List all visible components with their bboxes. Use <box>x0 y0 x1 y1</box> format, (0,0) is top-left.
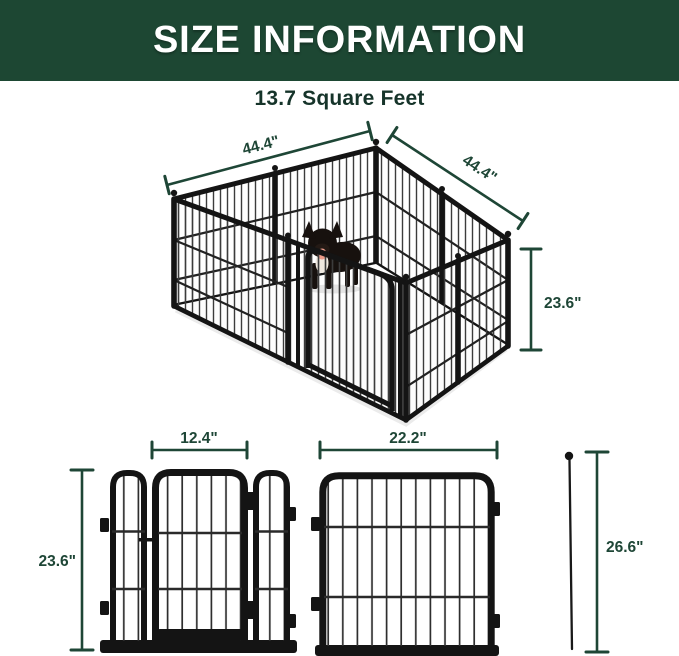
gate-group-base-bar <box>100 640 297 653</box>
single-panel-diagram: 22.2" <box>311 430 500 656</box>
connector-tab <box>491 614 500 628</box>
dimension-stake-length: 26.6" <box>586 452 644 652</box>
dim-label-gate-height: 23.6" <box>38 553 76 570</box>
dim-label-gate-width: 12.4" <box>180 430 218 447</box>
dim-label-pen-height: 23.6" <box>544 295 582 312</box>
dim-label-panel-width: 22.2" <box>389 430 427 447</box>
gate-door-bottom-rail <box>158 629 242 641</box>
gate-door-panel <box>156 473 245 642</box>
dim-label-back-right-width: 44.4" <box>459 152 500 187</box>
gate-side-panel-right <box>256 473 287 641</box>
dimension-gate-height: 23.6" <box>38 470 93 650</box>
gate-side-panel-left <box>113 473 144 641</box>
stake-head <box>565 452 573 460</box>
dimension-gate-width: 12.4" <box>152 430 247 458</box>
page-title: SIZE INFORMATION <box>153 19 526 62</box>
pen-3d-illustration <box>171 139 511 424</box>
gate-latch <box>139 538 153 542</box>
gate-hinge-bottom <box>244 601 258 619</box>
dim-label-stake-length: 26.6" <box>606 539 644 556</box>
area-label: 13.7 Square Feet <box>0 87 679 111</box>
panel-frame <box>323 476 491 646</box>
connector-tab <box>287 614 296 628</box>
connector-tab <box>311 597 320 611</box>
gate-hinge-top <box>244 492 258 510</box>
ground-stake-diagram: 26.6" <box>565 452 644 652</box>
stake-shaft <box>570 460 573 649</box>
dimension-panel-width: 22.2" <box>320 430 497 458</box>
connector-tab <box>287 507 296 521</box>
dim-label-back-left-width: 44.4" <box>241 133 282 159</box>
connector-tab <box>100 601 109 615</box>
connector-tab <box>311 517 320 531</box>
header-banner: SIZE INFORMATION <box>0 0 679 81</box>
gate-panel-diagram: 23.6" 12.4" <box>38 430 297 653</box>
dimension-pen-height: 23.6" <box>521 249 582 350</box>
connector-tab <box>100 518 109 532</box>
connector-tab <box>491 502 500 516</box>
panel-base-bar <box>315 645 499 656</box>
